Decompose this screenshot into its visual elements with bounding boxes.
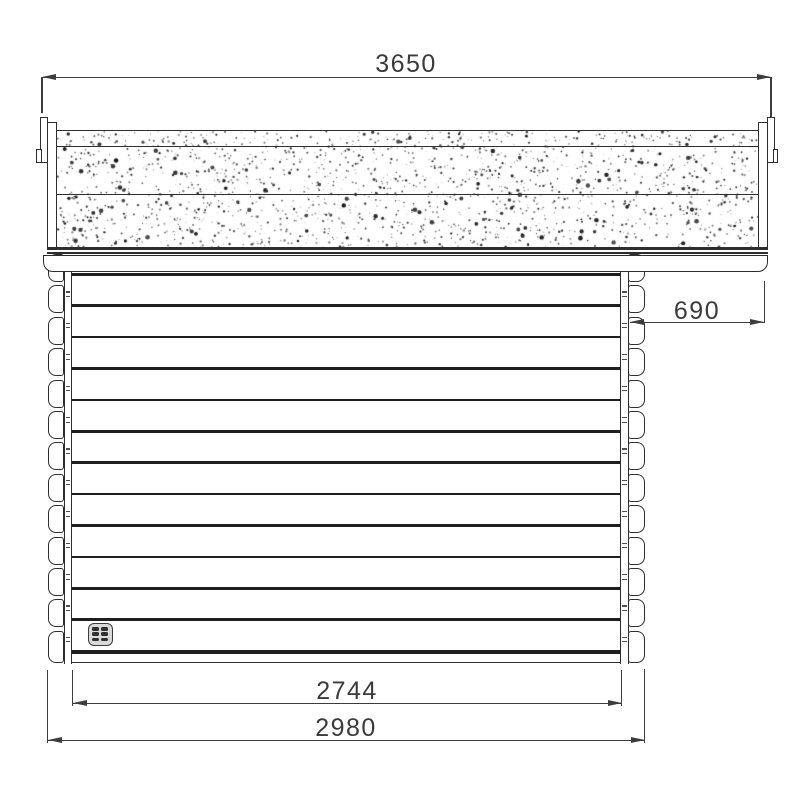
log-joint-line xyxy=(72,336,621,339)
dimension-label: 690 xyxy=(617,299,777,324)
log-joint-line xyxy=(72,587,621,590)
log-end xyxy=(628,348,645,376)
log-joint-line xyxy=(72,399,621,402)
log-end xyxy=(48,348,65,376)
notch-tick xyxy=(622,291,627,292)
dimension-label: 3650 xyxy=(306,52,506,77)
notch-tick xyxy=(622,354,627,355)
notch-tick xyxy=(622,480,627,481)
notch-tick xyxy=(622,637,627,638)
notch-tick xyxy=(66,354,71,355)
roof-fascia-board xyxy=(43,255,768,273)
roof-deck-line-thin xyxy=(47,252,768,254)
vent-grille-icon xyxy=(88,623,113,647)
notch-tick xyxy=(66,448,71,449)
log-end xyxy=(48,317,65,345)
log-end xyxy=(48,380,65,408)
notch-tick xyxy=(66,296,71,297)
notch-tick xyxy=(66,543,71,544)
log-joint-line xyxy=(72,650,621,655)
notch-tick xyxy=(66,605,71,606)
log-joint-line xyxy=(72,618,621,621)
log-joint-line xyxy=(72,556,621,559)
log-joint-line xyxy=(72,524,621,527)
notch-tick xyxy=(622,327,627,328)
log-end xyxy=(48,537,65,565)
arrowhead-right xyxy=(608,700,622,706)
notch-tick xyxy=(66,359,71,360)
notch-tick xyxy=(622,605,627,606)
log-end xyxy=(48,442,65,470)
log-joint-line xyxy=(72,430,621,433)
vent-slat xyxy=(92,627,99,631)
log-end xyxy=(628,505,645,533)
notch-tick xyxy=(622,359,627,360)
arrowhead-right xyxy=(631,737,645,743)
wall-base-line xyxy=(72,662,621,664)
vent-slat xyxy=(101,638,108,642)
roof-panel xyxy=(57,130,758,247)
log-end xyxy=(628,537,645,565)
notch-tick xyxy=(622,386,627,387)
roof-barge-step-left xyxy=(36,149,42,163)
vent-slat xyxy=(101,632,108,636)
notch-tick xyxy=(66,516,71,517)
notch-tick xyxy=(622,610,627,611)
dimension-label: 2980 xyxy=(246,716,446,741)
notch-tick xyxy=(622,296,627,297)
log-joint-line xyxy=(72,493,621,496)
log-end xyxy=(48,568,65,596)
corner-strip-left xyxy=(64,256,73,664)
arrowhead-left xyxy=(48,737,62,743)
notch-tick xyxy=(622,422,627,423)
roof-layer-line-2 xyxy=(57,194,758,196)
notch-tick xyxy=(622,390,627,391)
notch-tick xyxy=(66,574,71,575)
notch-tick xyxy=(622,484,627,485)
roof-speckle-texture xyxy=(57,131,758,248)
notch-tick xyxy=(622,574,627,575)
notch-tick xyxy=(66,511,71,512)
roof-edge-board-right xyxy=(758,122,768,248)
notch-tick xyxy=(66,390,71,391)
log-end xyxy=(628,442,645,470)
notch-tick xyxy=(622,453,627,454)
notch-tick xyxy=(66,291,71,292)
dimension-label: 2744 xyxy=(247,679,447,704)
notch-tick xyxy=(622,579,627,580)
notch-tick xyxy=(622,547,627,548)
roof-barge-step-right xyxy=(773,149,779,163)
shed-front-elevation-drawing: 3650 690 2744 2980 xyxy=(0,0,800,800)
notch-tick xyxy=(622,448,627,449)
log-joint-line xyxy=(72,304,621,307)
log-end xyxy=(628,631,645,663)
vent-slat xyxy=(92,632,99,636)
extension-line xyxy=(41,77,42,113)
extension-line xyxy=(644,669,645,743)
log-end xyxy=(48,474,65,502)
notch-tick xyxy=(66,484,71,485)
notch-tick xyxy=(66,641,71,642)
arrowhead-left xyxy=(42,74,56,80)
log-end xyxy=(48,599,65,627)
notch-tick xyxy=(622,417,627,418)
notch-tick xyxy=(66,453,71,454)
extension-line xyxy=(47,670,48,743)
arrowhead-left xyxy=(73,700,87,706)
notch-tick xyxy=(66,547,71,548)
notch-tick xyxy=(66,417,71,418)
notch-tick xyxy=(622,516,627,517)
corner-log-ends-left xyxy=(48,254,65,666)
notch-tick xyxy=(66,422,71,423)
arrowhead-right xyxy=(757,74,771,80)
notch-tick xyxy=(622,511,627,512)
log-end xyxy=(628,599,645,627)
log-end xyxy=(628,474,645,502)
notch-tick xyxy=(66,579,71,580)
roof-edge-board-left xyxy=(47,122,57,248)
log-end xyxy=(628,411,645,439)
log-joint-line xyxy=(72,461,621,464)
wall-log-courses xyxy=(72,272,621,665)
notch-tick xyxy=(66,323,71,324)
notch-tick xyxy=(622,641,627,642)
notch-tick xyxy=(66,637,71,638)
notch-tick xyxy=(622,543,627,544)
log-end xyxy=(48,505,65,533)
log-end xyxy=(48,411,65,439)
notch-tick xyxy=(66,610,71,611)
notch-tick xyxy=(66,480,71,481)
vent-slats xyxy=(92,627,108,641)
notch-tick xyxy=(66,327,71,328)
log-end xyxy=(628,380,645,408)
log-end xyxy=(48,631,65,663)
log-joint-line xyxy=(72,367,621,370)
log-joint-line xyxy=(72,273,621,276)
notch-tick xyxy=(66,386,71,387)
vent-slat xyxy=(92,638,99,642)
roof-deck-line-thick xyxy=(47,247,768,250)
log-end xyxy=(628,568,645,596)
log-end xyxy=(48,285,65,313)
vent-slat xyxy=(101,627,108,631)
extension-line xyxy=(770,77,771,118)
roof-layer-line-1 xyxy=(57,146,758,148)
